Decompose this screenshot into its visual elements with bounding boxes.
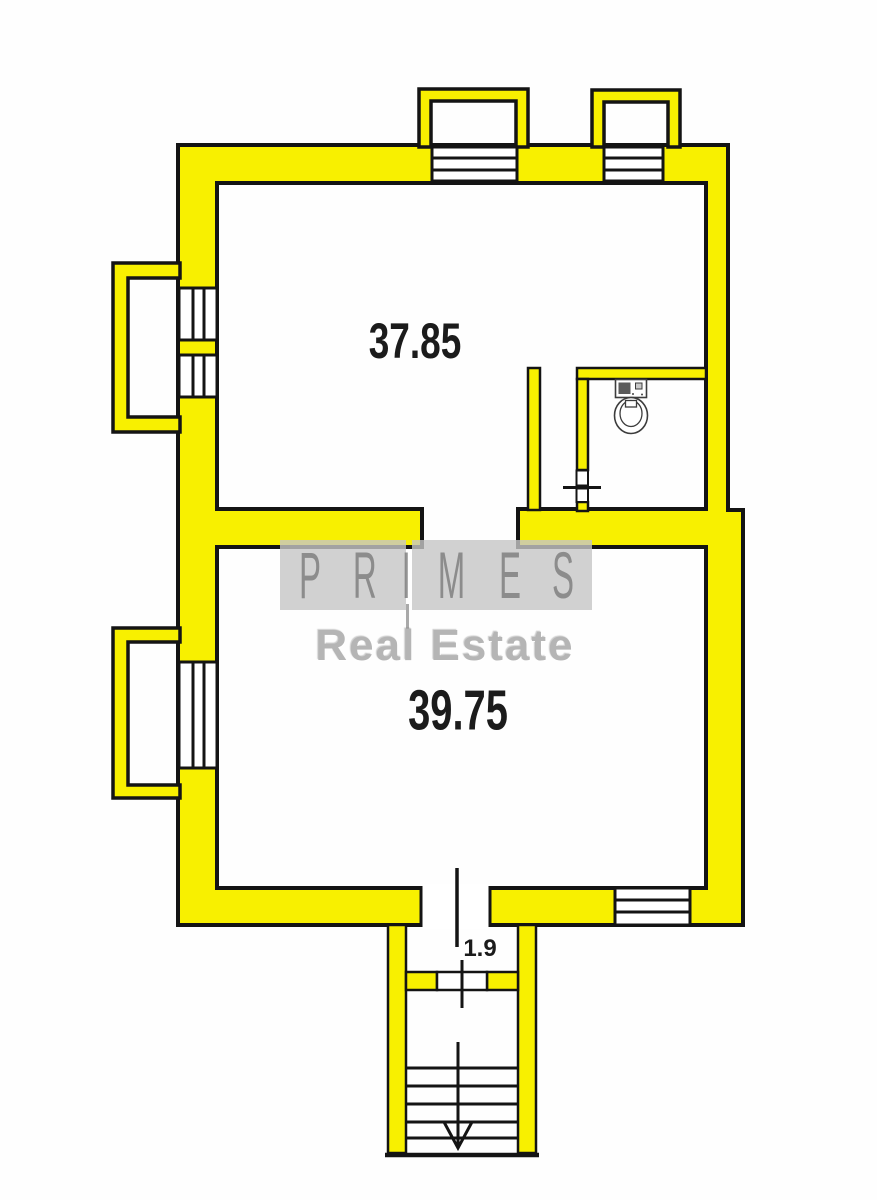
balcony-left-lower (113, 628, 180, 798)
toilet-icon (615, 380, 648, 434)
watermark-brand-letter: R (353, 537, 377, 613)
main-wall-outline (178, 145, 743, 925)
watermark-brand-letter: P (299, 537, 321, 613)
wc-door-cell-b (577, 489, 589, 503)
stairwell-landing-band-left (406, 972, 437, 990)
wc-left-wall (577, 379, 588, 470)
watermark-brand-letter: I (402, 537, 411, 613)
balcony-left-upper (113, 263, 180, 432)
stairs-down-arrow-icon (444, 1042, 472, 1148)
duct-wall (528, 368, 540, 510)
balcony-top-right (592, 90, 680, 147)
watermark-brand-letter: S (552, 537, 574, 613)
wc-door-cell-a (577, 471, 589, 486)
room-lower-area-label: 39.75 (408, 683, 508, 740)
window-top-right (604, 147, 663, 181)
watermark-brand-letter: E (499, 537, 521, 613)
stairwell-left-wall (388, 925, 406, 1153)
wc-door-symbol (563, 471, 601, 503)
window-top-left (432, 147, 517, 181)
window-left-lower (179, 662, 217, 768)
balcony-top-left (419, 89, 528, 147)
watermark-subtitle: Real Estate (315, 621, 574, 671)
window-left-upper-a (179, 288, 217, 340)
stair-treads (406, 1068, 518, 1138)
stairwell-right-wall (518, 925, 536, 1153)
wc-top-wall (577, 368, 706, 379)
stair-dimension-label: 1.9 (463, 937, 496, 961)
window-left-upper-b (179, 355, 217, 397)
window-bottom (615, 888, 690, 925)
room-upper-area-label: 37.85 (369, 316, 462, 366)
stairwell-landing-band-right (487, 972, 518, 990)
wc-left-wall-stub (577, 502, 588, 511)
watermark-brand-letter: M (438, 537, 465, 613)
floor-plan-canvas: P R I M E S Real Estate 37.85 39.75 1.9 (0, 0, 877, 1200)
watermark-brand: P R I M E S (288, 541, 585, 609)
